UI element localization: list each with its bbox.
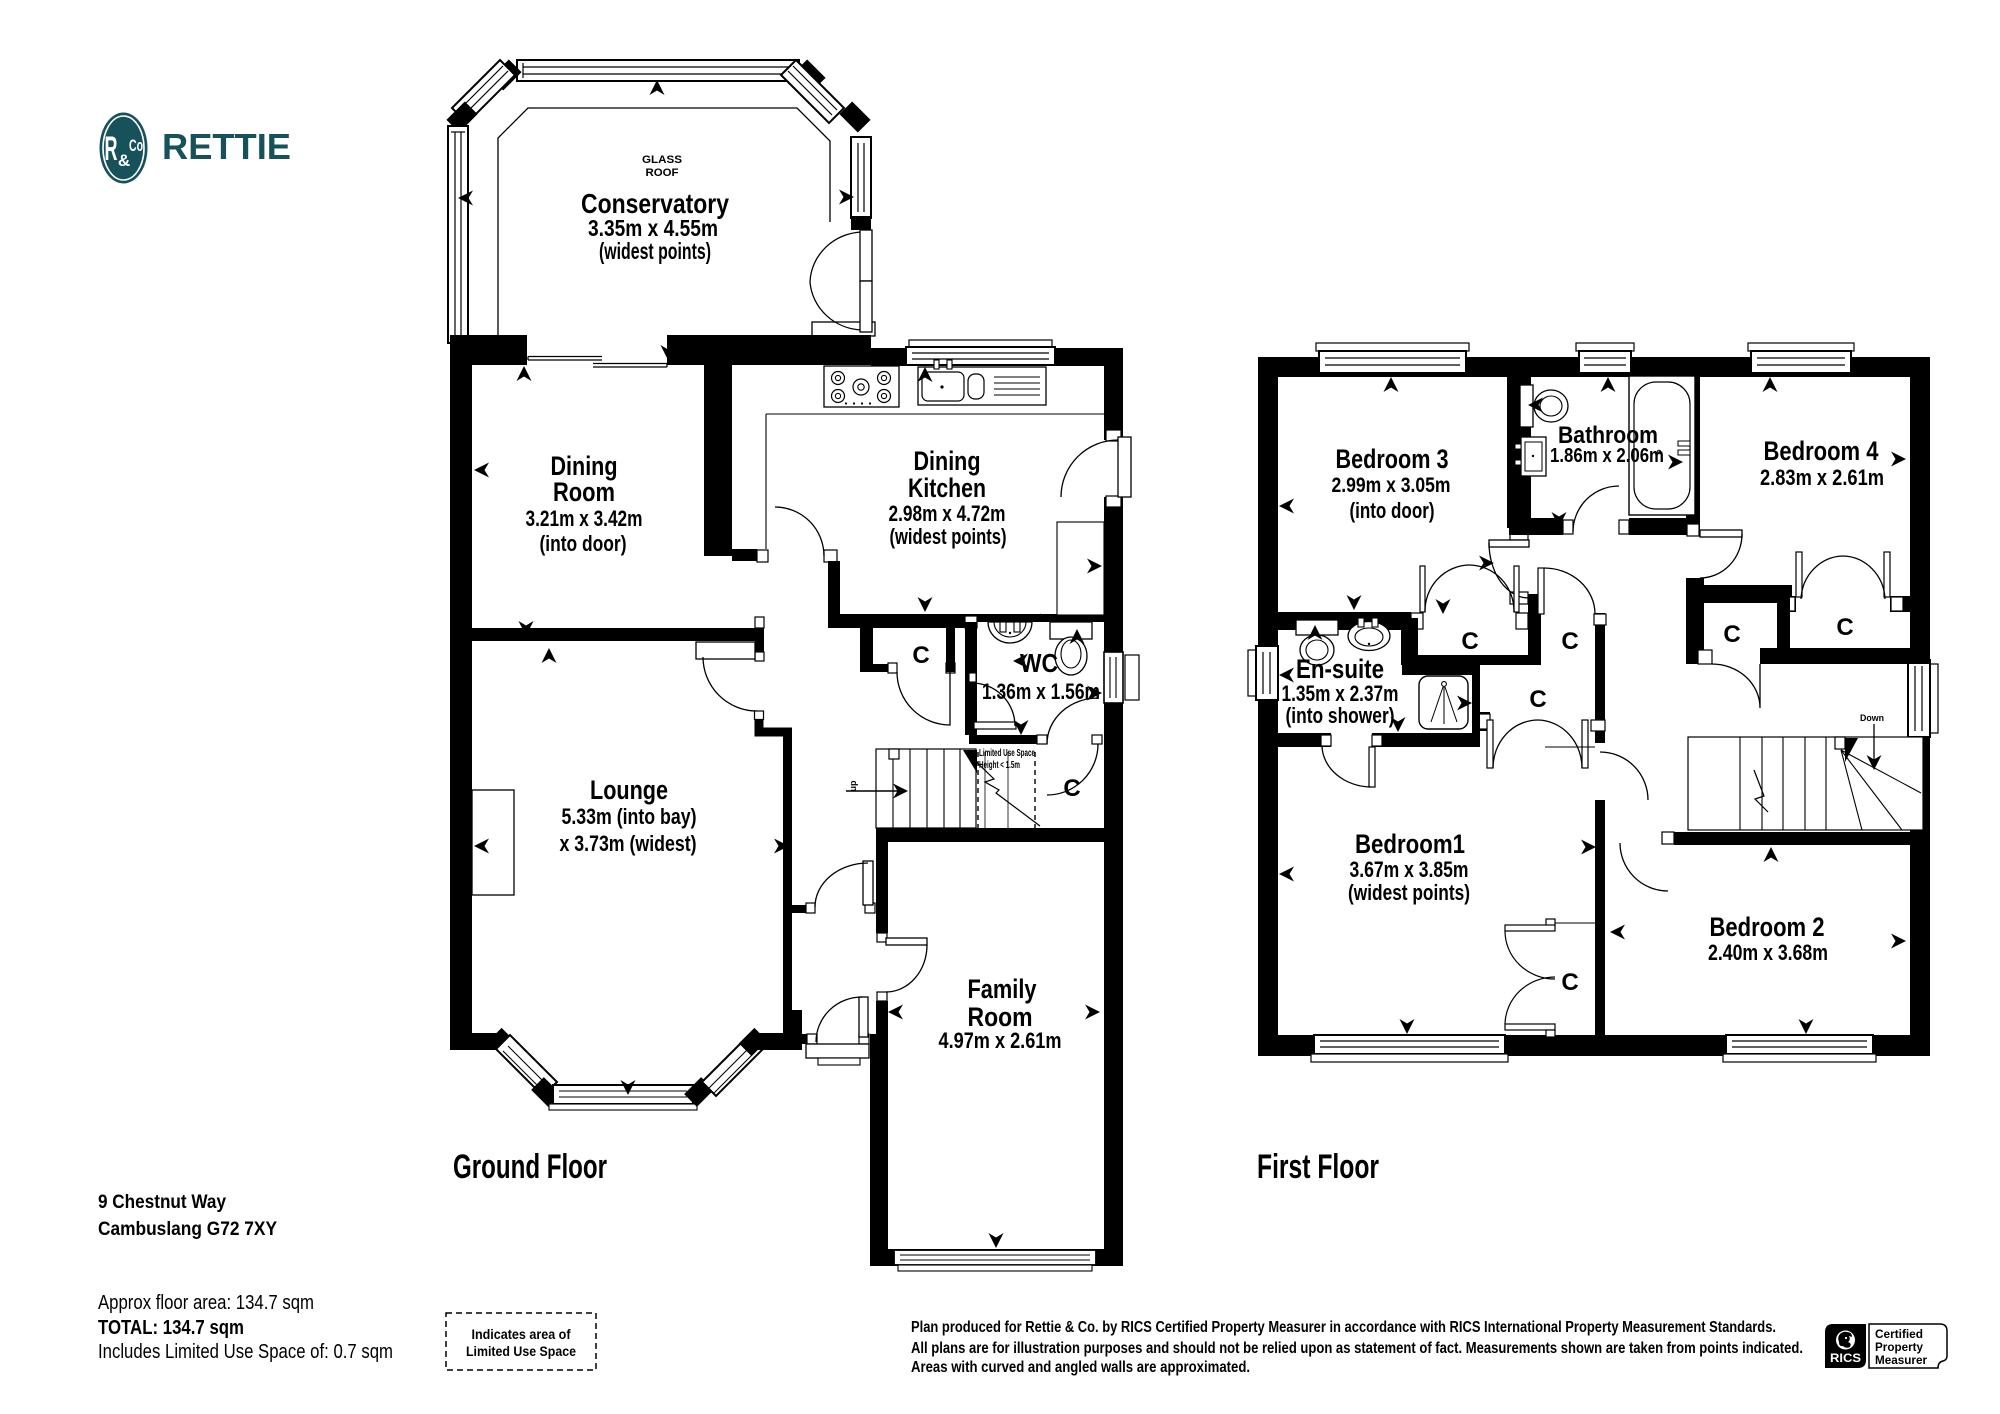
svg-text:C: C [1723,621,1740,648]
svg-text:Cambuslang G72 7XY: Cambuslang G72 7XY [98,1219,277,1240]
svg-text:C: C [1561,969,1578,996]
svg-text:C: C [1529,686,1546,713]
svg-text:2.98m x 4.72m: 2.98m x 4.72m [889,501,1006,526]
svg-text:Approx floor area: 134.7 sqm: Approx floor area: 134.7 sqm [98,1292,314,1314]
svg-text:Bedroom 2: Bedroom 2 [1710,912,1825,942]
svg-text:Bedroom 3: Bedroom 3 [1336,444,1449,474]
svg-text:C: C [1836,614,1853,641]
svg-text:4.97m x 2.61m: 4.97m x 2.61m [939,1028,1062,1053]
svg-text:Areas with curved and angled w: Areas with curved and angled walls are a… [911,1359,1250,1376]
svg-text:First Floor: First Floor [1257,1148,1379,1186]
svg-text:C: C [1063,775,1080,802]
svg-text:(widest points): (widest points) [1348,880,1470,905]
svg-text:Height < 1.5m: Height < 1.5m [979,759,1020,771]
svg-text:Measurer: Measurer [1875,1355,1928,1367]
svg-text:En-suite: En-suite [1296,654,1384,684]
svg-text:ROOF: ROOF [646,167,679,179]
svg-text:Limited Use Space: Limited Use Space [979,747,1035,759]
svg-text:(widest points): (widest points) [599,238,711,264]
svg-text:x 3.73m (widest): x 3.73m (widest) [560,831,697,856]
svg-text:All plans are for illustration: All plans are for illustration purposes … [911,1340,1803,1357]
svg-text:Co: Co [129,136,143,155]
svg-text:2.83m x 2.61m: 2.83m x 2.61m [1760,465,1884,490]
svg-text:Limited Use Space: Limited Use Space [466,1343,576,1359]
svg-text:Bedroom1: Bedroom1 [1355,829,1465,859]
svg-text:Ground Floor: Ground Floor [453,1148,607,1186]
svg-text:1.86m x 2.06m: 1.86m x 2.06m [1550,445,1664,467]
svg-text:(into door): (into door) [1350,498,1435,523]
svg-text:Lounge: Lounge [590,775,668,805]
svg-text:GLASS: GLASS [642,154,682,166]
svg-text:C: C [1461,628,1478,655]
svg-text:(into door): (into door) [540,531,627,556]
svg-text:C: C [912,642,929,669]
svg-text:(widest points): (widest points) [890,524,1007,549]
svg-text:Family: Family [968,974,1037,1004]
svg-text:(into shower): (into shower) [1286,703,1395,728]
svg-text:2.99m x 3.05m: 2.99m x 3.05m [1332,474,1451,497]
svg-text:Indicates area of: Indicates area of [472,1326,571,1342]
svg-text:Bedroom 4: Bedroom 4 [1764,436,1879,466]
svg-text:WC: WC [1020,648,1058,678]
svg-text:C: C [1561,628,1578,655]
svg-text:RETTIE: RETTIE [162,126,291,167]
svg-text:Dining: Dining [914,446,981,476]
svg-text:3.67m x 3.85m: 3.67m x 3.85m [1350,857,1469,882]
svg-text:TOTAL: 134.7 sqm: TOTAL: 134.7 sqm [98,1317,244,1339]
svg-text:Down: Down [1860,713,1884,724]
svg-text:R: R [105,130,118,168]
svg-text:Kitchen: Kitchen [908,473,986,503]
svg-text:Certified: Certified [1875,1329,1923,1341]
svg-text:Plan produced for Rettie & Co.: Plan produced for Rettie & Co. by RICS C… [911,1319,1776,1336]
svg-text:2.40m x 3.68m: 2.40m x 3.68m [1708,940,1828,965]
svg-text:Includes Limited Use Space of:: Includes Limited Use Space of: 0.7 sqm [98,1341,393,1363]
svg-text:Property: Property [1875,1342,1924,1354]
svg-text:3.21m x 3.42m: 3.21m x 3.42m [526,506,643,531]
svg-text:9 Chestnut Way: 9 Chestnut Way [98,1192,226,1213]
svg-text:1.36m x 1.56m: 1.36m x 1.56m [982,679,1100,704]
svg-text:Room: Room [553,477,615,507]
svg-text:up: up [848,780,858,791]
svg-text:RICS: RICS [1830,1351,1861,1365]
svg-text:5.33m (into bay): 5.33m (into bay) [562,804,697,829]
